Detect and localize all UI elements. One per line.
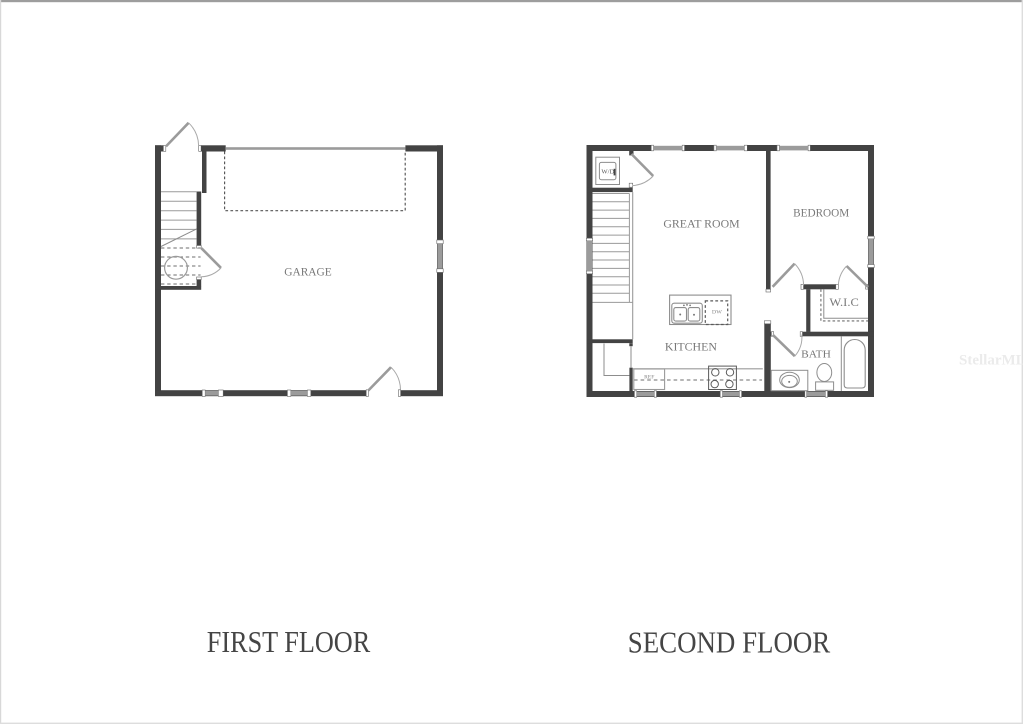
- svg-text:BATH: BATH: [801, 349, 831, 361]
- svg-text:W/D: W/D: [601, 170, 615, 176]
- svg-text:REF: REF: [644, 375, 654, 381]
- svg-text:GREAT ROOM: GREAT ROOM: [663, 217, 740, 231]
- svg-text:SECOND FLOOR: SECOND FLOOR: [628, 624, 831, 659]
- svg-text:BEDROOM: BEDROOM: [793, 205, 849, 219]
- svg-text:DW: DW: [712, 311, 722, 316]
- svg-text:StellarMLS: StellarMLS: [959, 353, 1023, 369]
- svg-text:KITCHEN: KITCHEN: [665, 339, 717, 353]
- svg-text:FIRST FLOOR: FIRST FLOOR: [207, 624, 371, 659]
- svg-text:GARAGE: GARAGE: [284, 265, 332, 279]
- svg-text:W.I.C: W.I.C: [829, 295, 858, 309]
